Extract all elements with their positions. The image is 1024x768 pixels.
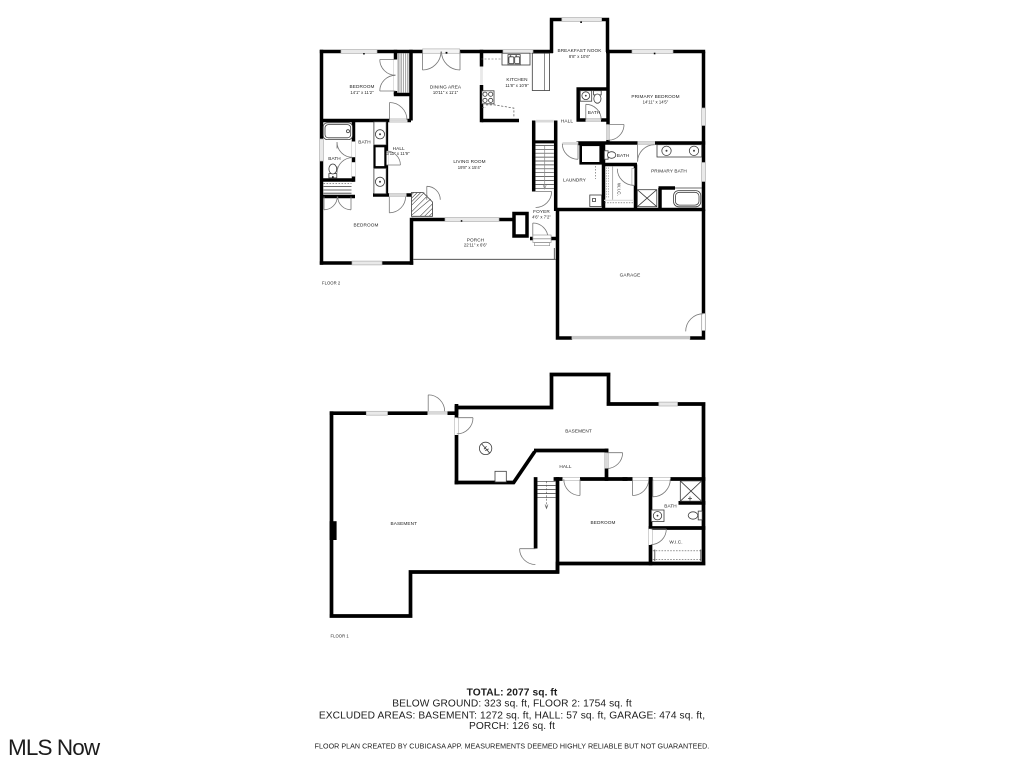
svg-text:BEDROOM: BEDROOM — [350, 84, 375, 89]
svg-text:BELOW GROUND: 323 sq. ft, FLOO: BELOW GROUND: 323 sq. ft, FLOOR 2: 1754 … — [392, 699, 632, 710]
svg-text:8'8" x 10'6": 8'8" x 10'6" — [569, 54, 591, 59]
svg-text:3'11" x 11'9": 3'11" x 11'9" — [387, 151, 410, 156]
svg-text:DINING AREA: DINING AREA — [430, 85, 462, 90]
svg-text:W.I.C.: W.I.C. — [669, 539, 682, 544]
svg-text:PRIMARY BATH: PRIMARY BATH — [651, 169, 687, 174]
svg-text:FLOOR 2: FLOOR 2 — [322, 280, 341, 285]
svg-text:W.I.C.: W.I.C. — [617, 183, 622, 196]
svg-text:4'6" x 7'2": 4'6" x 7'2" — [532, 215, 551, 220]
svg-text:EXCLUDED AREAS: BASEMENT: 1272: EXCLUDED AREAS: BASEMENT: 1272 sq. ft, H… — [319, 710, 705, 721]
svg-text:HALL: HALL — [561, 118, 573, 123]
svg-text:FLOOR 1: FLOOR 1 — [331, 634, 350, 639]
svg-text:14'11" x 14'5": 14'11" x 14'5" — [643, 100, 669, 105]
svg-text:KITCHEN: KITCHEN — [506, 77, 527, 82]
svg-text:22'11" x 6'6": 22'11" x 6'6" — [464, 242, 488, 247]
svg-text:GARAGE: GARAGE — [620, 272, 641, 277]
svg-text:BEDROOM: BEDROOM — [354, 222, 379, 227]
svg-text:HALL: HALL — [559, 464, 571, 469]
svg-text:BREAKFAST NOOK: BREAKFAST NOOK — [557, 48, 602, 53]
svg-text:14'1" x 11'2": 14'1" x 11'2" — [350, 90, 374, 95]
svg-text:11'8" x 10'9": 11'8" x 10'9" — [505, 83, 529, 88]
svg-text:LIVING ROOM: LIVING ROOM — [453, 159, 485, 164]
svg-text:FLOOR PLAN CREATED BY CUBICASA: FLOOR PLAN CREATED BY CUBICASA APP. MEAS… — [315, 742, 710, 750]
svg-text:BATH: BATH — [588, 110, 601, 115]
svg-text:BASEMENT: BASEMENT — [391, 521, 418, 526]
svg-text:BATH: BATH — [328, 156, 341, 161]
svg-text:TOTAL: 2077 sq. ft: TOTAL: 2077 sq. ft — [467, 688, 558, 699]
svg-text:BASEMENT: BASEMENT — [565, 429, 592, 434]
svg-text:10'11" x 11'1": 10'11" x 11'1" — [433, 90, 459, 95]
svg-text:FOYER: FOYER — [533, 209, 550, 214]
svg-text:LAUNDRY: LAUNDRY — [563, 178, 587, 183]
svg-text:BEDROOM: BEDROOM — [591, 520, 616, 525]
svg-text:PRIMARY BEDROOM: PRIMARY BEDROOM — [631, 94, 679, 99]
svg-text:BATH: BATH — [664, 504, 677, 509]
svg-text:MLS Now: MLS Now — [8, 735, 101, 760]
svg-text:BATH: BATH — [358, 140, 371, 145]
svg-text:PORCH: 126 sq. ft: PORCH: 126 sq. ft — [469, 721, 555, 732]
svg-text:19'8" x 15'4": 19'8" x 15'4" — [458, 165, 482, 170]
svg-text:BATH: BATH — [617, 153, 630, 158]
